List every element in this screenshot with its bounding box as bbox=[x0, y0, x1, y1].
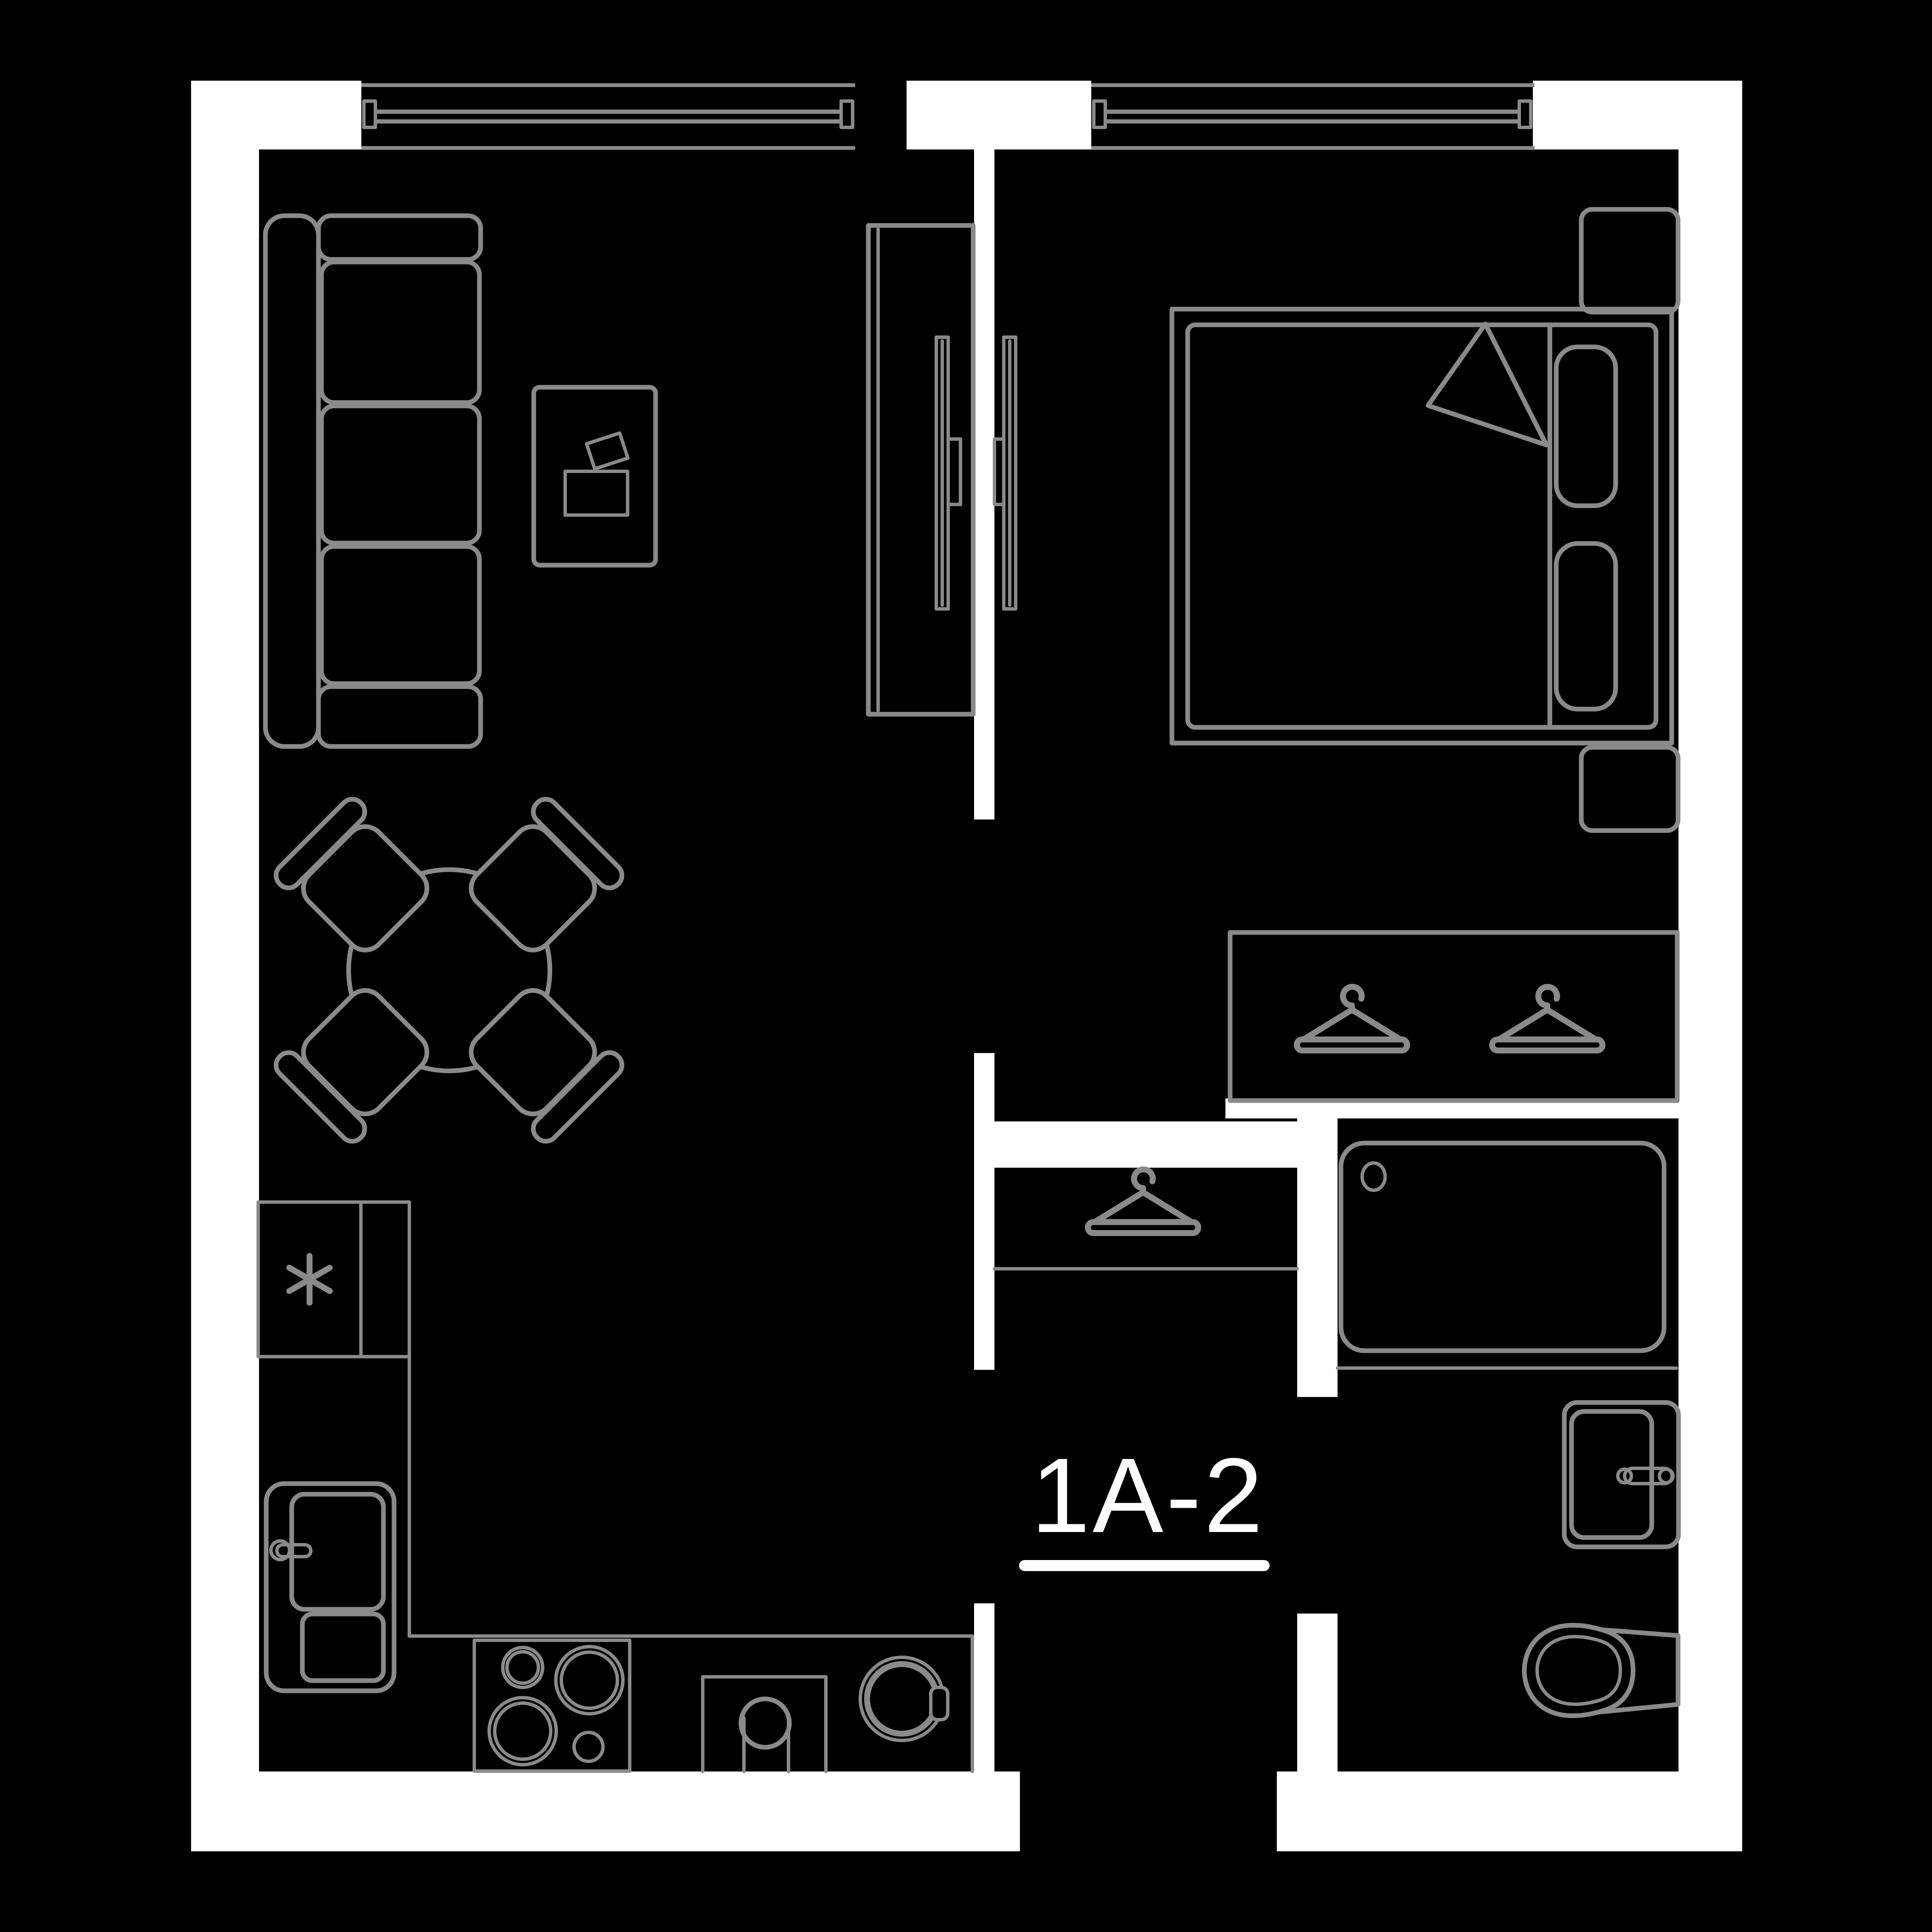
window-outer-top bbox=[1091, 83, 1535, 87]
unit-label-underline bbox=[1019, 1560, 1270, 1571]
window-outer-top bbox=[361, 83, 855, 87]
unit-label: 1A-2 bbox=[1031, 1436, 1265, 1555]
window-glass-1 bbox=[375, 110, 841, 114]
window-outer-bottom bbox=[361, 146, 855, 150]
window-glass-1 bbox=[1105, 110, 1520, 114]
wall-center-middle bbox=[974, 1053, 994, 1370]
wall-top-pier bbox=[907, 81, 1091, 149]
floor-plan: 1A-2 bbox=[0, 0, 1932, 1932]
wall-hall-bathroom-lower bbox=[1297, 1614, 1338, 1771]
wall-right bbox=[1679, 81, 1742, 1851]
washing-machine-latch bbox=[931, 1687, 948, 1720]
wall-hall-top bbox=[992, 1121, 1298, 1168]
toilet-bowl bbox=[1524, 1625, 1633, 1715]
wall-center-upper bbox=[974, 149, 994, 820]
wall-bottom-right bbox=[1277, 1771, 1742, 1851]
wall-center-lower bbox=[974, 1603, 994, 1771]
wall-hall-bathroom-upper bbox=[1297, 1118, 1338, 1397]
toilet-icon bbox=[1524, 1625, 1678, 1715]
window-glass-2 bbox=[375, 119, 841, 124]
wall-left bbox=[191, 81, 259, 1851]
wall-bottom-left bbox=[191, 1771, 1020, 1851]
window-outer-bottom bbox=[1091, 146, 1535, 150]
wall-top-left bbox=[191, 81, 361, 149]
window-glass-2 bbox=[1105, 119, 1520, 124]
